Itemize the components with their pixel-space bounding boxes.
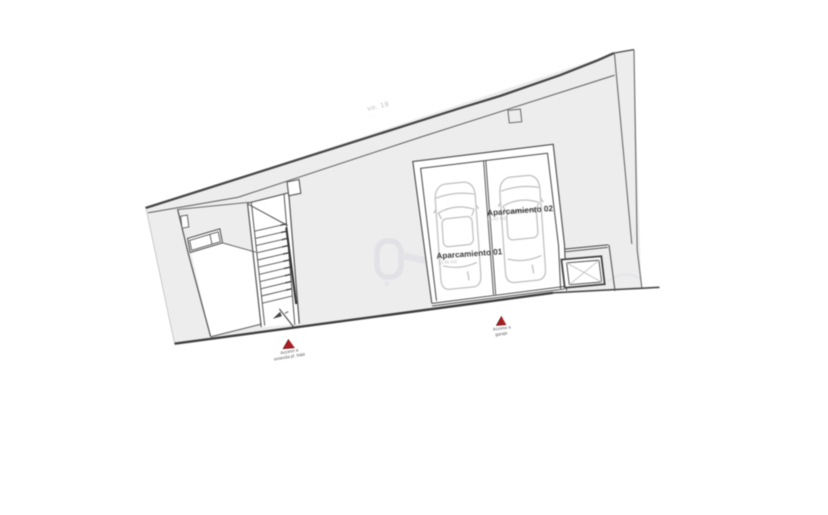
- svg-text:garaje: garaje: [495, 330, 508, 337]
- svg-text:.. .. ...: .. .. ...: [368, 112, 378, 118]
- svg-text:vo. 19: vo. 19: [367, 101, 390, 113]
